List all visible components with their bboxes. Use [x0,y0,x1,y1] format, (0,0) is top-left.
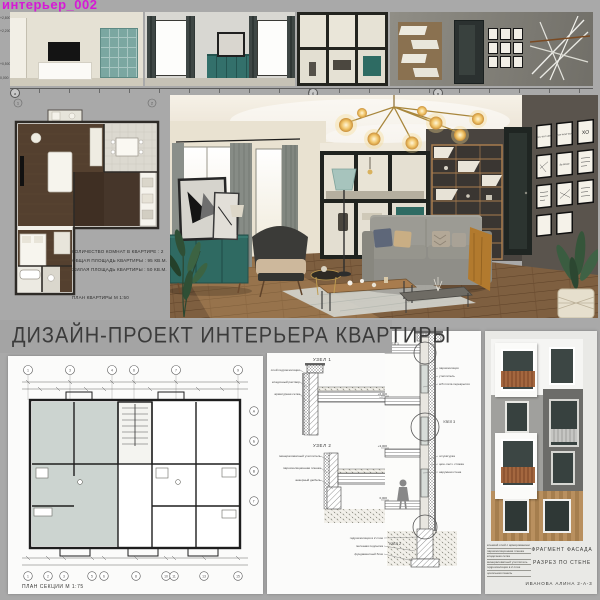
axis-letter: а [14,91,16,96]
cup [360,279,364,283]
chair-silhouette [309,62,316,76]
section-plan-panel: 1 3 4 6 7 9 [8,356,263,594]
plan-scale-label: ПЛАН КВАРТИРЫ М 1:50 [72,293,129,302]
svg-text:7: 7 [175,369,177,373]
toilet [48,275,54,281]
tv-console [38,62,92,80]
svg-text:наружная стена: наружная стена [439,470,461,474]
kitchen-cabinet [363,56,381,76]
facade-note: цокольная панель [487,571,531,577]
gallery-frame [536,183,552,209]
window [257,20,289,76]
circle-label: УЗЕЛ 2 [389,542,401,546]
gallery-frame [556,181,573,207]
axes-top: 1 3 4 6 7 9 [24,366,243,401]
gallery-frame [536,153,552,179]
interior-door [504,127,532,255]
svg-text:штукатурка: штукатурка [439,454,455,458]
node-title: УЗЕЛ 1 [313,357,331,362]
shelf [90,128,102,166]
elevation-strip [10,12,593,86]
kitchen-chair [338,213,348,231]
facade-caption-1: ФРАГМЕНТ ФАСАДА [529,547,595,553]
woven-pot [558,289,594,318]
elevation-panel-window-wall [145,12,295,86]
svg-text:минераловатный утеплитель: минераловатный утеплитель [279,454,321,458]
gallery-frame [536,213,552,237]
bathtub [20,270,40,279]
cup [372,283,376,287]
svg-text:+6,000: +6,000 [378,392,388,396]
curtain [186,16,195,78]
footing [411,559,439,567]
axis-circle: а [10,88,20,98]
apartment-info: КОЛИЧЕСТВО КОМНАТ В КВАРТИРЕ : 2 ОБЩАЯ П… [72,247,172,274]
facade-drawing [491,339,583,541]
facade-notes: клеевой слой с армированием пароизоляцио… [487,543,531,577]
svg-text:1: 1 [27,369,29,373]
balcony-rail-gray [551,429,577,442]
kitchen-counter-behind [326,191,424,199]
glass-pane [358,15,385,47]
dimension-line [10,88,593,95]
cup [348,281,353,286]
stair-core [118,402,152,464]
gallery-frame [556,211,573,235]
svg-text:гидроизоляция в 2 слоя: гидроизоляция в 2 слоя [350,536,384,540]
shelf-panel [411,40,439,49]
svg-text:15: 15 [236,574,240,578]
candle [384,277,388,283]
svg-text:пароизоляционная пленка: пароизоляционная пленка [283,466,321,470]
stick-coat-rack [530,16,590,82]
plan-axis-circles: 1 2 [14,99,156,107]
elevation-panel-glass-partition [297,12,388,86]
door-opening [10,18,27,78]
section-window [421,469,428,497]
svg-text:0,000: 0,000 [379,496,387,500]
kitchen-table-silhouette [333,60,351,70]
info-line: КОЛИЧЕСТВО КОМНАТ В КВАРТИРЕ : 2 [72,247,172,256]
door [454,20,484,84]
details-panel: УЗЕЛ 1 слой гидроизоляции кладочный раст… [267,331,481,594]
page-title: интерьер_002 [2,0,97,12]
author-label: ИВАНОВА АЛИНА 2-А-3 [523,581,595,586]
svg-text:фундаментный блок: фундаментный блок [355,552,384,556]
gallery-frame [577,179,594,205]
svg-text:кладочный раствор: кладочный раствор [272,380,300,384]
svg-text:11: 11 [172,574,176,578]
svg-text:слой гидроизоляции: слой гидроизоляции [271,368,301,372]
table-lamp [230,205,244,217]
tv-screen [48,42,80,61]
title-bar: ДИЗАЙН-ПРОЕКТ ИНТЕРЬЕРА КВАРТИРЫ [0,320,392,353]
svg-text:13: 13 [202,574,206,578]
svg-text:песчаная подсыпка: песчаная подсыпка [356,544,383,548]
svg-text:3: 3 [69,369,71,373]
geometric-shelf [398,22,442,80]
svg-text:6: 6 [103,574,105,578]
wall-section: УЗЕЛ 1 УЗЕЛ 3 УЗЕЛ 2 +9,000 +6,000 +3,00… [350,331,470,567]
section-labels-top: пароизоляция утеплитель ж/б плита перекр… [439,366,470,386]
gallery-frame [577,149,594,175]
curtain [249,16,257,78]
curtain [287,16,295,78]
facade-white-box [495,343,537,397]
node2-left-labels: минераловатный утеплитель пароизоляционн… [279,454,321,482]
gallery-frames-grid [488,28,523,68]
svg-text:анкерный дюбель: анкерный дюбель [295,478,321,482]
info-line: ОБЩАЯ ПЛОЩАДЬ КВАРТИРЫ : 95 КВ.М. [72,256,172,265]
svg-text:цем.-песч. стяжка: цем.-песч. стяжка [439,462,464,466]
svg-text:1: 1 [27,574,29,578]
floor-band [145,78,295,86]
gallery-frame: Be Brave [556,151,573,177]
armchair [31,133,41,143]
height-mark: +0,500 [0,62,10,66]
teal-sideboard [207,54,249,78]
teal-shelving-unit [100,28,138,78]
window [155,20,189,76]
facade-white-box [495,433,537,499]
foundation-block [417,529,433,559]
balcony [48,110,82,122]
facade-window [551,451,575,485]
node1-left-labels: слой гидроизоляции кладочный раствор арм… [271,368,301,396]
facade-caption-2: РАЗРЕЗ ПО СТЕНЕ [529,560,595,566]
pillow-gray [452,233,466,247]
facade-window [549,347,575,385]
plan-axis-label: 1 [17,101,20,106]
axes-right: А Б В Г [250,407,259,506]
pillow-beige [393,230,411,247]
interior-render: ADV ENT URE WOW WOW WOW XO Be Brave [170,95,598,318]
balcony-rail-wood [501,467,535,483]
curtain [147,16,156,78]
hall-and-kitchen-counter [74,172,156,226]
bedroom-wing [18,230,72,292]
gallery-frame: XO [577,119,594,145]
facade-panel: клеевой слой с армированием пароизоляцио… [485,331,597,594]
kitchen-dining [104,124,156,172]
facade-window [505,401,529,433]
svg-text:10: 10 [164,574,168,578]
svg-text:пароизоляция: пароизоляция [439,366,459,370]
section-window [421,365,428,393]
sofa [48,152,72,192]
tv-wall [20,156,24,186]
dimension-lines-bottom [22,556,248,565]
dining-table [116,138,138,156]
picture-frame [217,32,245,57]
svg-text:6: 6 [133,369,135,373]
svg-text:ж/б плита перекрытия: ж/б плита перекрытия [439,382,470,386]
section-plan-drawing: 1 3 4 6 7 9 [8,356,263,594]
dimension-lines-top [22,380,248,391]
details-drawing: УЗЕЛ 1 слой гидроизоляции кладочный раст… [267,331,481,594]
door-glass [459,25,475,75]
node-title: УЗЕЛ 2 [313,443,331,448]
plan-axis-label: 2 [151,101,154,106]
height-mark: +2,800 [0,16,10,20]
glass-pane [300,15,326,47]
height-mark: 0,000 [0,76,9,80]
svg-text:Г: Г [253,499,255,503]
svg-text:9: 9 [237,369,239,373]
svg-text:8: 8 [135,574,137,578]
height-mark: +2,200 [0,29,10,33]
section-labels-bottom: гидроизоляция в 2 слоя песчаная подсыпка… [350,536,384,556]
pillow-navy [373,228,393,248]
section-labels-mid: штукатурка цем.-песч. стяжка наружная ст… [439,454,464,474]
svg-text:утеплитель: утеплитель [439,374,455,378]
section-plan-label: ПЛАН СЕКЦИИ М 1:75 [22,584,84,590]
balcony-rail-wood [501,371,535,387]
svg-text:3: 3 [63,574,65,578]
kitchen-pendant [368,170,373,175]
project-title: ДИЗАЙН-ПРОЕКТ ИНТЕРЬЕРА КВАРТИРЫ [12,324,451,349]
poster-text: XO [582,129,589,136]
svg-text:4: 4 [111,369,113,373]
facade-window [503,499,529,533]
circle-label: УЗЕЛ 3 [443,420,455,424]
gallery-frame: WOW WOW WOW [556,121,573,147]
wardrobe [54,232,70,254]
shelf-panel [401,54,427,63]
elevation-panel-living-wall [10,12,143,86]
facade-window [543,499,571,533]
svg-text:арматурная сетка: арматурная сетка [274,392,300,396]
node-detail-2: УЗЕЛ 2 минераловатный утеплитель пароизо… [279,443,400,523]
svg-text:5: 5 [91,574,93,578]
presentation-board: интерьер_002 +2,800 +2,200 +0,500 0,000 [0,0,600,600]
glass-pane [329,15,355,47]
facade-window [549,399,579,447]
axes-bottom: 1 2 3 5 6 8 10 11 13 15 [24,572,243,581]
svg-text:2: 2 [47,574,49,578]
shelf-panel [413,68,439,77]
info-line: ЖИЛАЯ ПЛОЩАДЬ КВАРТИРЫ : 50 КВ.М. [72,265,172,274]
sofa-arm [362,231,374,283]
vase [321,266,327,272]
gallery-frame: ADV ENT URE [536,123,552,149]
elevation-panel-concrete-wall [390,12,593,86]
door-handle [525,192,527,194]
shelf-panel [399,26,428,35]
svg-text:+3,000: +3,000 [378,444,388,448]
